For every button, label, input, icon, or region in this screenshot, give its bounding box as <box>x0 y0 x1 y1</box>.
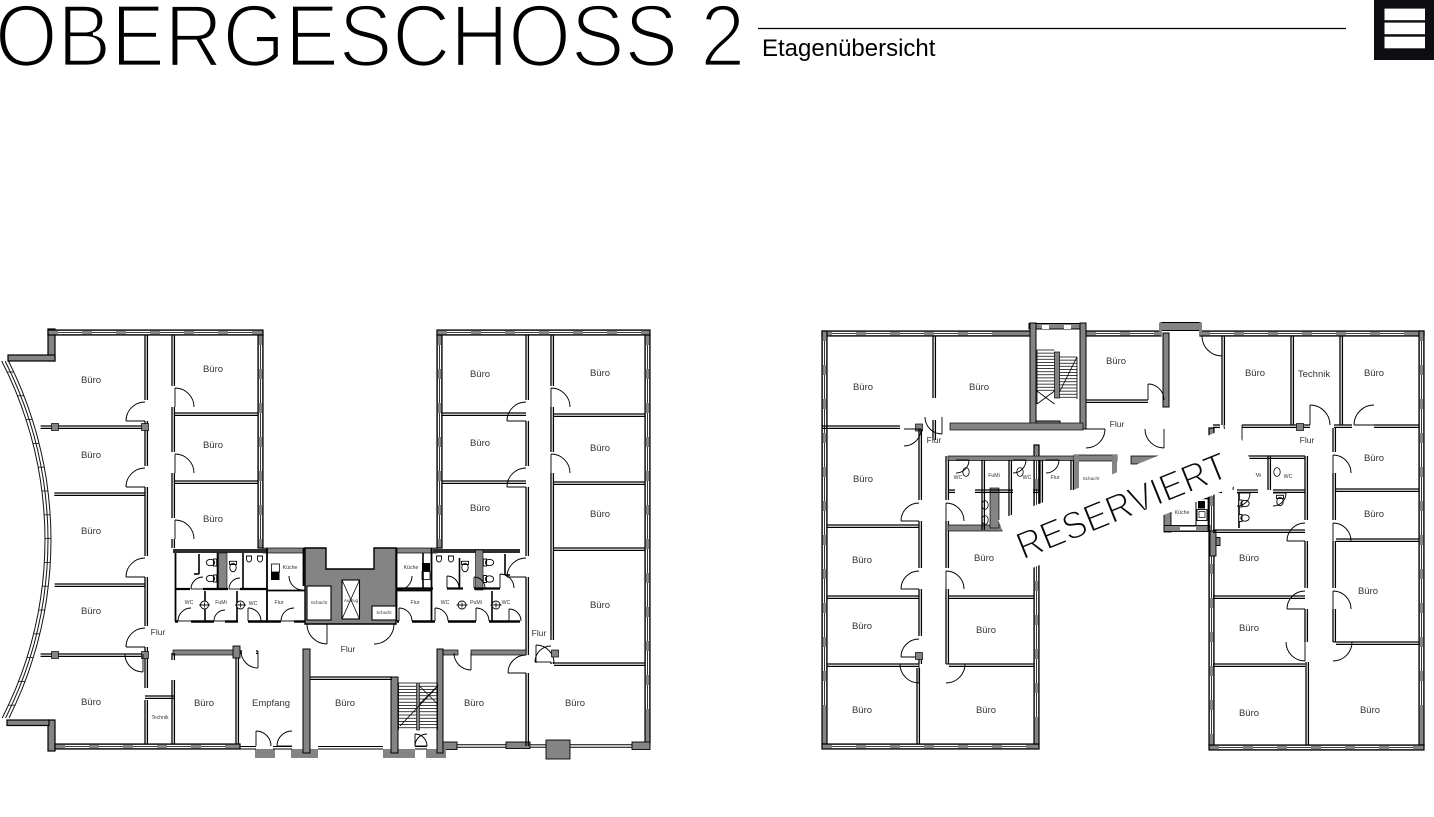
svg-text:WC: WC <box>1284 474 1293 480</box>
svg-text:Etagenübersicht: Etagenübersicht <box>762 35 936 62</box>
svg-text:Büro: Büro <box>852 555 872 566</box>
svg-text:Schacht: Schacht <box>1083 476 1100 481</box>
svg-text:Büro: Büro <box>1364 368 1384 379</box>
svg-text:Büro: Büro <box>194 698 214 709</box>
svg-text:PuMi: PuMi <box>470 600 482 606</box>
svg-text:Büro: Büro <box>969 382 989 393</box>
svg-text:Büro: Büro <box>470 503 490 514</box>
svg-text:WC: WC <box>249 601 258 607</box>
svg-text:Büro: Büro <box>1360 705 1380 716</box>
svg-text:FuMi: FuMi <box>988 473 1000 479</box>
svg-text:Büro: Büro <box>852 705 872 716</box>
svg-text:Büro: Büro <box>976 625 996 636</box>
svg-text:Flur: Flur <box>1300 435 1315 445</box>
svg-text:FuMi: FuMi <box>215 600 227 606</box>
svg-text:Büro: Büro <box>81 375 101 386</box>
svg-text:WC: WC <box>185 600 194 606</box>
svg-text:Flur: Flur <box>151 627 166 637</box>
svg-text:Flur: Flur <box>275 600 284 606</box>
svg-text:Büro: Büro <box>1364 509 1384 520</box>
svg-text:Schacht: Schacht <box>376 610 392 615</box>
svg-text:Büro: Büro <box>335 698 355 709</box>
svg-text:Flur: Flur <box>1051 475 1060 481</box>
svg-text:Büro: Büro <box>1358 586 1378 597</box>
svg-text:Büro: Büro <box>1245 368 1265 379</box>
svg-text:Flur: Flur <box>341 644 356 654</box>
svg-text:Büro: Büro <box>470 369 490 380</box>
svg-text:Küche: Küche <box>283 565 298 571</box>
svg-text:WC: WC <box>502 600 511 606</box>
svg-text:OBERGESCHOSS 2: OBERGESCHOSS 2 <box>0 0 745 85</box>
svg-text:Büro: Büro <box>565 698 585 709</box>
svg-text:WC: WC <box>954 475 963 481</box>
svg-text:Büro: Büro <box>590 509 610 520</box>
svg-text:Büro: Büro <box>974 553 994 564</box>
svg-text:Büro: Büro <box>81 526 101 537</box>
svg-text:Büro: Büro <box>976 705 996 716</box>
svg-text:Flur: Flur <box>532 628 547 638</box>
svg-text:WC: WC <box>441 600 450 606</box>
svg-text:Büro: Büro <box>590 368 610 379</box>
svg-text:Büro: Büro <box>1364 453 1384 464</box>
svg-text:Flur: Flur <box>927 435 942 445</box>
svg-text:Büro: Büro <box>81 450 101 461</box>
svg-text:Büro: Büro <box>470 438 490 449</box>
svg-text:Büro: Büro <box>203 440 223 451</box>
svg-text:Büro: Büro <box>590 443 610 454</box>
svg-text:Büro: Büro <box>464 698 484 709</box>
svg-text:Flur: Flur <box>1110 419 1125 429</box>
svg-text:Büro: Büro <box>853 474 873 485</box>
svg-text:Büro: Büro <box>203 364 223 375</box>
svg-text:Küche: Küche <box>1175 510 1190 516</box>
svg-text:Küche: Küche <box>404 565 419 571</box>
svg-text:Büro: Büro <box>1239 623 1259 634</box>
svg-text:Empfang: Empfang <box>252 698 290 709</box>
svg-text:Büro: Büro <box>1239 708 1259 719</box>
svg-text:Flur: Flur <box>411 600 420 606</box>
svg-text:Büro: Büro <box>81 606 101 617</box>
svg-text:WC: WC <box>1023 475 1032 481</box>
svg-text:Technik: Technik <box>1298 369 1330 380</box>
svg-text:Büro: Büro <box>852 621 872 632</box>
svg-text:Schacht: Schacht <box>311 600 328 605</box>
svg-text:Büro: Büro <box>853 382 873 393</box>
svg-text:Büro: Büro <box>590 600 610 611</box>
svg-text:Büro: Büro <box>203 514 223 525</box>
svg-text:Büro: Büro <box>1239 553 1259 564</box>
svg-text:Aufzug: Aufzug <box>344 598 359 603</box>
svg-text:Büro: Büro <box>1106 356 1126 367</box>
svg-text:Technik: Technik <box>152 715 169 721</box>
svg-text:Büro: Büro <box>81 697 101 708</box>
